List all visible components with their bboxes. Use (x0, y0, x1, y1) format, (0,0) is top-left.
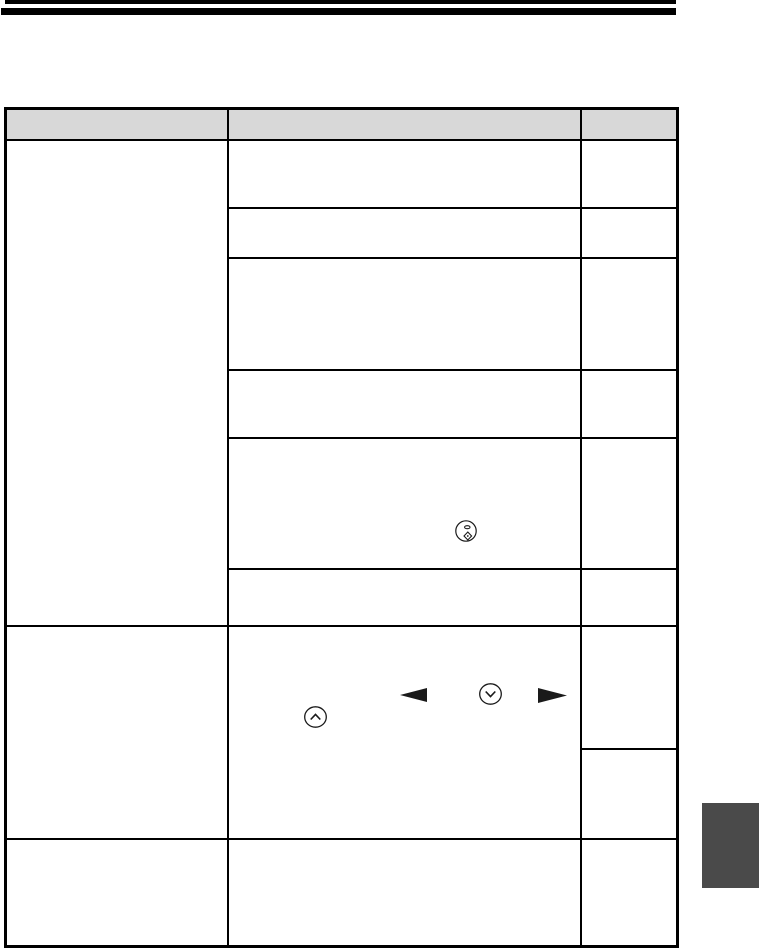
top-rule-thick (1, 8, 676, 15)
page-edge-tab (702, 803, 759, 888)
col2-cell-2 (229, 209, 582, 259)
col2-cell-8 (229, 840, 582, 945)
chevron-down-button-icon (479, 683, 502, 705)
col2-cell-6 (229, 570, 582, 627)
col2-cell-7 (229, 627, 582, 840)
chevron-up-button-icon (304, 706, 327, 728)
col3-cell-4 (582, 371, 676, 439)
left-arrow-icon (400, 688, 427, 702)
right-arrow-icon (538, 688, 567, 703)
col3-cell-7 (582, 627, 676, 750)
col1-cell-2 (7, 627, 229, 840)
diamond-button-icon (455, 520, 477, 542)
col2-cell-1 (229, 141, 582, 209)
col3-cell-2 (582, 209, 676, 259)
table-header-col2 (229, 110, 582, 141)
col3-cell-3 (582, 259, 676, 371)
col2-cell-4 (229, 371, 582, 439)
col3-cell-8 (582, 750, 676, 840)
document-page (0, 0, 759, 951)
col3-cell-9 (582, 840, 676, 945)
content-table (4, 107, 679, 948)
col3-cell-1 (582, 141, 676, 209)
top-rule-thin (5, 0, 676, 4)
col1-cell-1 (7, 141, 229, 627)
col2-cell-5 (229, 439, 582, 570)
table-header-col1 (7, 110, 229, 141)
col3-cell-5 (582, 439, 676, 570)
col2-cell-3 (229, 259, 582, 371)
col3-cell-6 (582, 570, 676, 627)
col1-cell-3 (7, 840, 229, 945)
table-header-col3 (582, 110, 676, 141)
